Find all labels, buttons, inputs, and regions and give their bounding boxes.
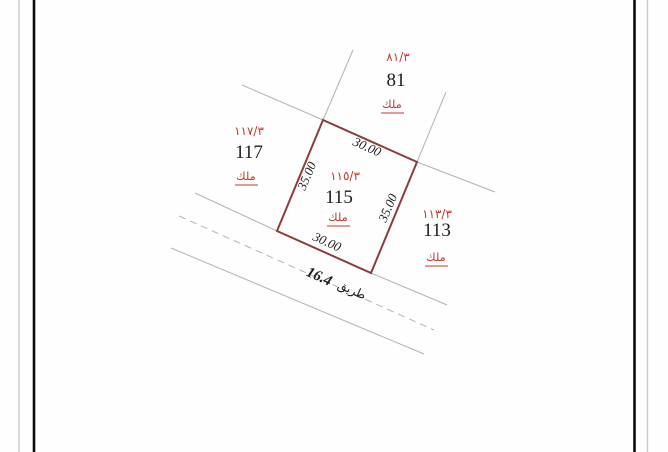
boundary-extension-top-left <box>242 85 323 120</box>
plot-113-number: 113 <box>423 220 451 241</box>
survey-plan-canvas: ١١٥/٣ 115 ملك 30.00 30.00 35.00 35.00 ٨١… <box>0 0 668 452</box>
boundary-extension-upper-left <box>323 50 353 120</box>
dimension-bottom-30: 30.00 <box>310 228 344 254</box>
road-edge-line <box>171 248 424 354</box>
boundary-extension-upper-right <box>417 92 446 162</box>
boundary-extension-top-right <box>417 162 495 192</box>
plot-117-tenure-label: ملك <box>236 169 256 183</box>
plot-113-parcel-number-arabic: ١١٣/٣ <box>422 207 452 221</box>
road-width-label: 16.4 <box>304 264 335 289</box>
road-name-label: طريق <box>335 278 368 304</box>
scanned-survey-page: ١١٥/٣ 115 ملك 30.00 30.00 35.00 35.00 ٨١… <box>0 0 668 452</box>
plot-113-tenure-label: ملك <box>426 250 446 264</box>
boundary-extension-bottom-left <box>195 193 277 231</box>
plot-81-parcel-number-arabic: ٨١/٣ <box>386 50 410 64</box>
plot-117-number: 117 <box>235 142 263 163</box>
boundary-extension-bottom-right <box>371 273 447 305</box>
plot-115-number: 115 <box>325 187 353 208</box>
plot-115-parcel-number-arabic: ١١٥/٣ <box>330 169 360 183</box>
dimension-right-35: 35.00 <box>375 191 401 225</box>
dimension-left-35: 35.00 <box>294 159 320 193</box>
plot-117-parcel-number-arabic: ١١٧/٣ <box>234 124 264 138</box>
plot-81-number: 81 <box>387 70 406 91</box>
dimension-top-30: 30.00 <box>350 133 384 159</box>
plot-115-tenure-label: ملك <box>328 210 348 224</box>
plot-81-tenure-label: ملك <box>382 97 402 111</box>
